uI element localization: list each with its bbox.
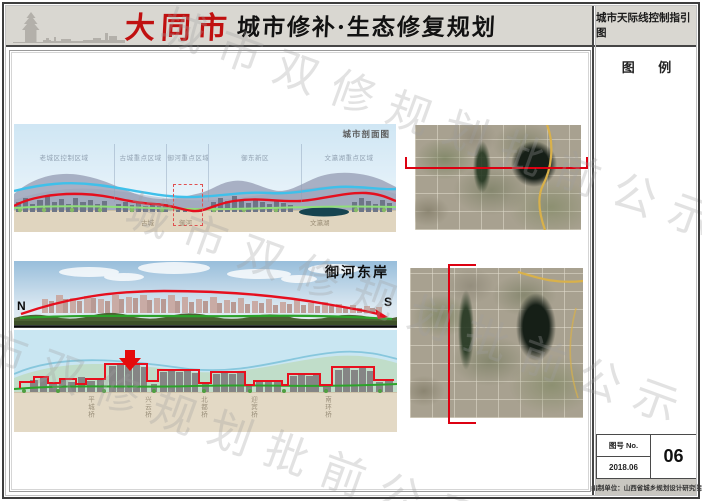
pano-title: 御河东岸 <box>325 262 389 282</box>
bridge-label: 北都桥 <box>199 396 206 419</box>
sheet-title-text: 城市天际线控制指引图 <box>596 10 697 40</box>
sidebar-divider <box>592 5 594 496</box>
section-cut-line <box>405 167 588 169</box>
plan-title-rest: 城市修补·生态修复规划 <box>236 8 498 42</box>
zone-labels-row: 老城区控制区域 古城重点区域 御河重点区域 御东新区 文瀛湖重点区域 <box>14 144 396 202</box>
south-label: S <box>384 295 392 309</box>
landmark-label: 文瀛湖 <box>310 217 330 227</box>
title-block: 图号 No. 2018.06 06 <box>596 434 697 479</box>
sheet-number: 06 <box>651 435 696 478</box>
satellite-map-bottom <box>403 256 590 428</box>
zone-label: 古城重点区域 <box>115 144 167 202</box>
satellite-image <box>415 125 581 230</box>
sheet-date: 2018.06 <box>597 457 650 479</box>
north-label: N <box>17 299 26 313</box>
plan-sheet: 大同市 城市修补·生态修复规划 城市天际线控制指引图 图 例 图号 No. 20… <box>0 0 702 501</box>
city-profile-diagram: 城市剖面图 老城区控制区域 古城重点区域 御河重点区域 御东新区 文瀛湖重点区域… <box>14 124 396 232</box>
section-cut-line <box>448 264 450 424</box>
landmark-label: 御河 <box>179 217 192 227</box>
plan-title: 大同市 城市修补·生态修复规划 <box>125 5 497 45</box>
zone-label: 文瀛湖重点区域 <box>302 144 396 202</box>
profile-title: 城市剖面图 <box>342 128 390 140</box>
ring-road <box>539 125 551 230</box>
sheet-title: 城市天际线控制指引图 <box>596 5 697 45</box>
zone-label: 御东新区 <box>209 144 302 202</box>
skyline-control-diagram: 平城桥 兴云桥 北都桥 迎宾桥 南环桥 <box>14 330 397 432</box>
zone-label: 老城区控制区域 <box>14 144 115 202</box>
ring-road <box>518 272 583 282</box>
bridge-label: 迎宾桥 <box>249 396 256 419</box>
credit-line: 编制单位：山西省城乡规划设计研究院 <box>596 478 697 495</box>
sheet-no-label: 图号 No. <box>597 435 650 457</box>
city-silhouette-logo <box>13 9 125 43</box>
bridge-label: 平城桥 <box>86 396 93 419</box>
landmark-label: 古城 <box>141 217 154 227</box>
bridge-label: 兴云桥 <box>143 396 150 419</box>
river-east-bank-panorama: 御河东岸 N S <box>14 261 397 330</box>
satellite-image <box>410 268 583 418</box>
legend-title: 图 例 <box>596 57 697 76</box>
satellite-map-top <box>403 124 590 233</box>
plan-title-city: 大同市 <box>124 3 234 47</box>
header-band: 大同市 城市修补·生态修复规划 <box>5 5 592 45</box>
bridge-label: 南环桥 <box>323 396 330 419</box>
